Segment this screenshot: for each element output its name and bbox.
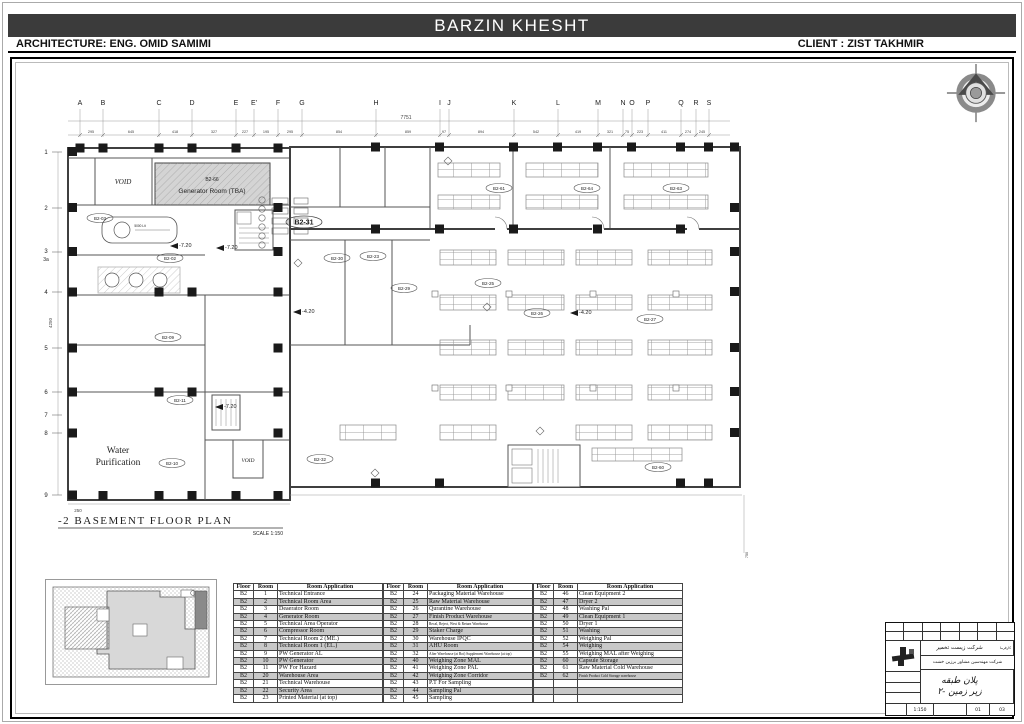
table-row: B2 22 Security Area [234,687,383,694]
cell-application: Technical Entrance [278,591,383,598]
consultant-company: شرکت مهندسین مشاور برزین خشت [921,660,1014,665]
svg-text:A: A [78,100,83,107]
cell-application: Security Area [278,687,383,694]
cell-room: 29 [404,628,428,635]
col-header-room: Room [254,584,278,591]
table-row: B2 50 Dryer 1 [534,621,683,628]
table-row: B2 40 Weighing Zone MAL [384,658,533,665]
svg-text:274: 274 [685,130,691,134]
cell-application: Technical Room 1 (EL.) [278,643,383,650]
svg-text:B2-27: B2-27 [644,317,657,322]
table-row: B2 47 Dryer 2 [534,598,683,605]
sheet-number: 03 [990,704,1014,716]
table-row: B2 49 Clean Equipment 1 [534,613,683,620]
cell-floor: B2 [384,695,404,702]
cell-application: Weighing [578,643,683,650]
cell-floor [534,695,554,702]
cell-application: Clean Equipment 1 [578,613,683,620]
cell-application: Weighing Zone PAL [428,665,533,672]
svg-text:B2-10: B2-10 [166,461,179,466]
title-block: شرکت زیست تخمیر کارفرما شرکت مهندسین مشا… [885,622,1015,716]
cell-floor: B2 [234,613,254,620]
cell-application: Compressor Room [278,628,383,635]
cell-application: Warehouse Area [278,672,383,679]
cell-application: Deaerator Room [278,606,383,613]
svg-text:B2-02: B2-02 [164,256,177,261]
svg-text:245: 245 [699,130,705,134]
svg-text:250: 250 [74,508,82,513]
info-row: ARCHITECTURE: ENG. OMID SAMIMI CLIENT : … [8,37,1016,53]
table-row: B2 9 PW Generator AL [234,650,383,657]
svg-text:645: 645 [128,130,134,134]
cell-room: 3 [254,606,278,613]
table-row: B2 5 Technical Area Operator [234,621,383,628]
svg-text:G: G [299,100,304,107]
cell-room: 1 [254,591,278,598]
svg-text:4250: 4250 [48,317,53,328]
svg-text:4: 4 [44,290,48,296]
plan-scale: SCALE 1:150 [253,531,284,537]
water-purification-label: Water [107,446,130,456]
table-row: B2 4 Generator Room [234,613,383,620]
table-row: B2 55 Weighing MAL after Weighing [534,650,683,657]
cell-application: Dryer 2 [578,598,683,605]
cell-room: 50 [554,621,578,628]
table-row: B2 61 Raw Material Cold Warehouse [534,665,683,672]
table-row: B2 54 Weighing [534,643,683,650]
svg-text:B2-11: B2-11 [174,398,186,403]
cell-floor [534,680,554,687]
cell-room: 47 [554,598,578,605]
cell-room: 31 [404,643,428,650]
svg-text:411: 411 [661,130,667,134]
table-row: B2 42 Weighing Zone Corridor [384,672,533,679]
svg-text:327: 327 [211,130,217,134]
cell-room: 41 [404,665,428,672]
cell-floor: B2 [384,658,404,665]
warehouse-racks [340,163,712,461]
svg-text:97: 97 [442,130,446,134]
svg-text:B2-09: B2-09 [162,335,175,340]
svg-text:B2-26: B2-26 [531,311,544,316]
cell-room: 28 [404,621,428,628]
cell-room: 54 [554,643,578,650]
svg-text:B2-23: B2-23 [367,254,380,259]
svg-text:1: 1 [44,150,48,156]
cell-floor: B2 [384,628,404,635]
table-row: B2 10 PW Generator [234,658,383,665]
table-row: B2 20 Warehouse Area [234,672,383,679]
cell-floor: B2 [534,650,554,657]
svg-text:-7.20: -7.20 [225,245,238,251]
svg-text:Purification: Purification [96,457,141,468]
cell-application [578,687,683,694]
room-schedule: Floor Room Room Application B2 1 Technic… [233,583,683,703]
cell-floor: B2 [384,680,404,687]
table-row: B2 52 Weighing Pal [534,635,683,642]
cell-room: 24 [404,591,428,598]
cell-floor: B2 [234,621,254,628]
cell-room: 40 [404,658,428,665]
cell-floor: B2 [384,650,404,657]
cell-floor: B2 [234,635,254,642]
table-row: B2 3 Deaerator Room [234,606,383,613]
svg-text:-4.20: -4.20 [302,309,315,315]
cell-floor: B2 [534,665,554,672]
client-label: CLIENT : ZIST TAKHMIR [798,38,924,50]
drawing-title-fa: پلان طبقه زیر زمین -۲ [921,676,998,698]
svg-text:I: I [439,100,441,107]
cell-room: 61 [554,665,578,672]
cell-room: 21 [254,680,278,687]
svg-text:295: 295 [287,130,293,134]
table-header-row: Floor Room Room Application [234,584,383,591]
cell-room: 43 [404,680,428,687]
svg-text:2: 2 [44,206,48,212]
stair-core-bottom [508,445,580,487]
cell-application: Printed Material (at top) [278,695,383,702]
svg-text:7751: 7751 [400,115,411,121]
cell-floor: B2 [534,598,554,605]
cell-floor: B2 [384,598,404,605]
cell-room: 60 [554,658,578,665]
table-row: B2 29 Staker Charge [384,628,533,635]
left-building-block [68,148,308,504]
scale-value: 1:150 [907,704,934,716]
company-logo [886,641,920,672]
svg-text:B2-25: B2-25 [482,281,495,286]
cell-room: 46 [554,591,578,598]
svg-text:419: 419 [575,130,581,134]
title-block-bottom-strip: 1:150 01 03 [886,703,1014,716]
table-row: B2 26 Qurantine Warehouse [384,606,533,613]
cell-room [554,695,578,702]
svg-text:B2-60: B2-60 [652,465,665,470]
table-row: B2 1 Technical Entrance [234,591,383,598]
cell-floor: B2 [534,606,554,613]
svg-text:B2-32: B2-32 [314,457,327,462]
svg-text:B: B [101,100,106,107]
cell-room: 48 [554,606,578,613]
grid-column-labels: A B C D E E' F G H I J K L M N O P Q R S [78,100,712,107]
cell-room: 49 [554,613,578,620]
cell-floor: B2 [534,635,554,642]
col-header-application: Room Application [278,584,383,591]
svg-text:Q: Q [678,100,684,107]
cell-application: Technical Room Area [278,598,383,605]
table-row: B2 21 Technical Warehouse [234,680,383,687]
cell-application: Technical Area Operator [278,621,383,628]
svg-text:B2-64: B2-64 [581,186,594,191]
cell-application: Packaging Material Warehouse [428,591,533,598]
cell-application: Warehouse IPQC [428,635,533,642]
cell-floor: B2 [234,643,254,650]
cell-floor: B2 [234,680,254,687]
cell-room: 23 [254,695,278,702]
svg-text:9: 9 [44,493,48,499]
cell-floor: B2 [234,606,254,613]
cell-application: Washing [578,628,683,635]
cell-room [554,680,578,687]
cell-floor: B2 [384,672,404,679]
cell-floor [534,687,554,694]
cell-room: 4 [254,613,278,620]
cell-floor: B2 [234,695,254,702]
cell-application: Clean Equipment 2 [578,591,683,598]
svg-text:E: E [234,100,239,107]
cell-application: Weighing Zone Corridor [428,672,533,679]
cell-application: PW Generator AL [278,650,383,657]
cell-application: Sampling Pal [428,687,533,694]
table-row: B2 27 Finish Product Warehouse [384,613,533,620]
table-row: B2 11 PW For Hazard [234,665,383,672]
revision-number: 01 [967,704,990,716]
table-row: B2 7 Technical Room 2 (ME.) [234,635,383,642]
cell-application: Weighing Zone MAL [428,658,533,665]
table-row: B2 51 Washing [534,628,683,635]
dimension-labels: 7751 295 645 418 327 227 195 295 854 859… [48,115,749,558]
cell-room: 6 [254,628,278,635]
floor-plan: A B C D E E' F G H I J K L M N O P Q R S… [40,95,752,577]
cell-room: 30 [404,635,428,642]
svg-text:7: 7 [44,413,48,419]
svg-text:-7.20: -7.20 [179,243,192,249]
cell-floor: B2 [234,665,254,672]
cell-room: 2 [254,598,278,605]
svg-text:321: 321 [607,130,613,134]
svg-text:-4.20: -4.20 [579,310,592,316]
cell-floor: B2 [534,672,554,679]
drawing-title-bar: BARZIN KHESHT [8,14,1016,37]
project-title: BARZIN KHESHT [434,16,590,36]
svg-text:B2-31: B2-31 [294,220,313,227]
svg-text:223: 223 [637,130,643,134]
room-schedule-table-3: Floor Room Room Application B2 46 Clean … [533,583,683,703]
cell-room: 8 [254,643,278,650]
cell-room: 44 [404,687,428,694]
svg-text:B2-63: B2-63 [670,186,683,191]
svg-text:B2-30: B2-30 [331,256,344,261]
svg-text:E': E' [251,100,257,107]
svg-text:859: 859 [405,130,411,134]
svg-text:B2-61: B2-61 [493,186,506,191]
cell-floor: B2 [234,687,254,694]
cell-application: Capsule Storage [578,658,683,665]
svg-text:B2-29: B2-29 [398,286,411,291]
cell-floor: B2 [534,613,554,620]
cell-application: Technical Warehouse [278,680,383,687]
svg-text:3a: 3a [43,257,49,263]
cell-floor: B2 [384,665,404,672]
svg-text:-7.20: -7.20 [224,404,237,410]
table-header-row: Floor Room Room Application [384,584,533,591]
cell-floor: B2 [384,606,404,613]
cell-application: Recal, Reject, West & Return Warehouse [428,621,533,628]
table-row: B2 30 Warehouse IPQC [384,635,533,642]
svg-text:750: 750 [745,552,749,558]
cell-application: Weighing Pal [578,635,683,642]
cell-application [578,680,683,687]
col-header-floor: Floor [234,584,254,591]
svg-text:542: 542 [533,130,539,134]
table-row [534,695,683,702]
svg-text:O: O [629,100,635,107]
svg-text:195: 195 [263,130,269,134]
room-schedule-table-2: Floor Room Room Application B2 24 Packag… [383,583,533,703]
table-row: B2 48 Washing Pal [534,606,683,613]
svg-text:D: D [189,100,194,107]
svg-text:R: R [693,100,698,107]
cell-application: Raw Material Cold Warehouse [578,665,683,672]
generator-name: Generator Room (TBA) [178,188,245,195]
cell-application: PW For Hazard [278,665,383,672]
table-row: B2 41 Weighing Zone PAL [384,665,533,672]
architect-label: ARCHITECTURE: ENG. OMID SAMIMI [16,38,211,50]
cell-floor: B2 [234,650,254,657]
cell-room [554,687,578,694]
cell-floor: B2 [534,591,554,598]
stair-core-top [235,210,273,250]
table-row: B2 23 Printed Material (at top) [234,695,383,702]
cell-room: 55 [554,650,578,657]
key-plan [45,579,217,685]
cell-room: 51 [554,628,578,635]
cell-application: PW Generator [278,658,383,665]
cell-room: 7 [254,635,278,642]
cell-application: Finish Product Cold Storage warehouse [578,672,683,679]
svg-text:N: N [620,100,625,107]
cell-application: Qurantine Warehouse [428,606,533,613]
cell-floor: B2 [384,635,404,642]
cell-application: Washing Pal [578,606,683,613]
cell-application: Dryer 1 [578,621,683,628]
north-arrow-icon [946,63,1006,123]
cell-room: 11 [254,665,278,672]
cell-application: Finish Product Warehouse [428,613,533,620]
svg-text:6: 6 [44,390,48,396]
svg-text:P: P [646,100,651,107]
cell-floor: B2 [384,613,404,620]
void-label-top: VOID [115,178,132,186]
table-row [534,687,683,694]
svg-text:B2-03: B2-03 [94,216,107,221]
cell-floor: B2 [384,591,404,598]
table-row: B2 31 AHU Room [384,643,533,650]
floor-drain-symbols [294,157,544,477]
cell-application: Staker Charge [428,628,533,635]
table-row [534,680,683,687]
svg-text:5: 5 [44,346,48,352]
svg-text:295: 295 [88,130,94,134]
cell-application: Raw Material Warehouse [428,598,533,605]
table-row: B2 25 Raw Material Warehouse [384,598,533,605]
title-block-top-strip [886,623,1014,632]
cell-room: 27 [404,613,428,620]
cell-application [578,695,683,702]
owner-company: شرکت زیست تخمیر [921,645,998,651]
table-row: B2 2 Technical Room Area [234,598,383,605]
cell-floor: B2 [384,643,404,650]
cell-application: Generator Room [278,613,383,620]
svg-text:K: K [512,100,517,107]
cell-room: 22 [254,687,278,694]
cell-room: 62 [554,672,578,679]
svg-text:894: 894 [478,130,484,134]
svg-text:75: 75 [625,130,629,134]
plan-title: -2 BASEMENT FLOOR PLAN [58,515,232,527]
table-row: B2 8 Technical Room 1 (EL.) [234,643,383,650]
cell-room: 52 [554,635,578,642]
table-row: B2 44 Sampling Pal [384,687,533,694]
table-row: B2 62 Finish Product Cold Storage wareho… [534,672,683,679]
table-row: B2 28 Recal, Reject, West & Return Wareh… [384,621,533,628]
cell-room: 20 [254,672,278,679]
svg-text:M: M [595,100,601,107]
cell-floor: B2 [234,598,254,605]
table-row: B2 46 Clean Equipment 2 [534,591,683,598]
svg-text:J: J [447,100,451,107]
cell-room: 42 [404,672,428,679]
table-row: B2 45 Sampling [384,695,533,702]
cell-floor: B2 [534,643,554,650]
generator-tag: B2-66 [205,177,219,183]
svg-text:854: 854 [336,130,342,134]
svg-text:H: H [373,100,378,107]
cell-floor: B2 [384,621,404,628]
void-label-bottom: VOID [242,458,255,464]
cell-application: Sampling [428,695,533,702]
tank-label: 5000 Lit [134,224,145,228]
cell-application: AHU Room [428,643,533,650]
svg-text:8: 8 [44,431,48,437]
cell-room: 32 [404,650,428,657]
svg-text:F: F [276,100,280,107]
client-label-fa: کارفرما [998,641,1014,655]
svg-text:C: C [156,100,161,107]
cell-floor: B2 [234,658,254,665]
table-header-row: Floor Room Room Application [534,584,683,591]
room-schedule-table-1: Floor Room Room Application B2 1 Technic… [233,583,383,703]
cell-application: Weighing MAL after Weighing [578,650,683,657]
cell-room: 45 [404,695,428,702]
cell-floor: B2 [534,621,554,628]
cell-application: After Warehouse (at Bot) Supplement Ware… [428,650,533,657]
cell-floor: B2 [384,687,404,694]
cell-floor: B2 [234,672,254,679]
cell-floor: B2 [234,628,254,635]
svg-text:418: 418 [172,130,178,134]
svg-text:S: S [707,100,712,107]
cell-room: 9 [254,650,278,657]
cell-room: 25 [404,598,428,605]
table-row: B2 6 Compressor Room [234,628,383,635]
cell-floor: B2 [234,591,254,598]
cell-floor: B2 [534,658,554,665]
cell-floor: B2 [534,628,554,635]
cell-room: 26 [404,606,428,613]
cell-room: 5 [254,621,278,628]
cell-application: P.T For Sampling [428,680,533,687]
cell-room: 10 [254,658,278,665]
table-row: B2 24 Packaging Material Warehouse [384,591,533,598]
table-row: B2 32 After Warehouse (at Bot) Supplemen… [384,650,533,657]
svg-text:3: 3 [44,249,48,255]
cell-application: Technical Room 2 (ME.) [278,635,383,642]
table-row: B2 43 P.T For Sampling [384,680,533,687]
plan-caption: -2 BASEMENT FLOOR PLAN SCALE 1:150 [58,515,283,537]
svg-text:L: L [556,100,560,107]
svg-text:227: 227 [242,130,248,134]
